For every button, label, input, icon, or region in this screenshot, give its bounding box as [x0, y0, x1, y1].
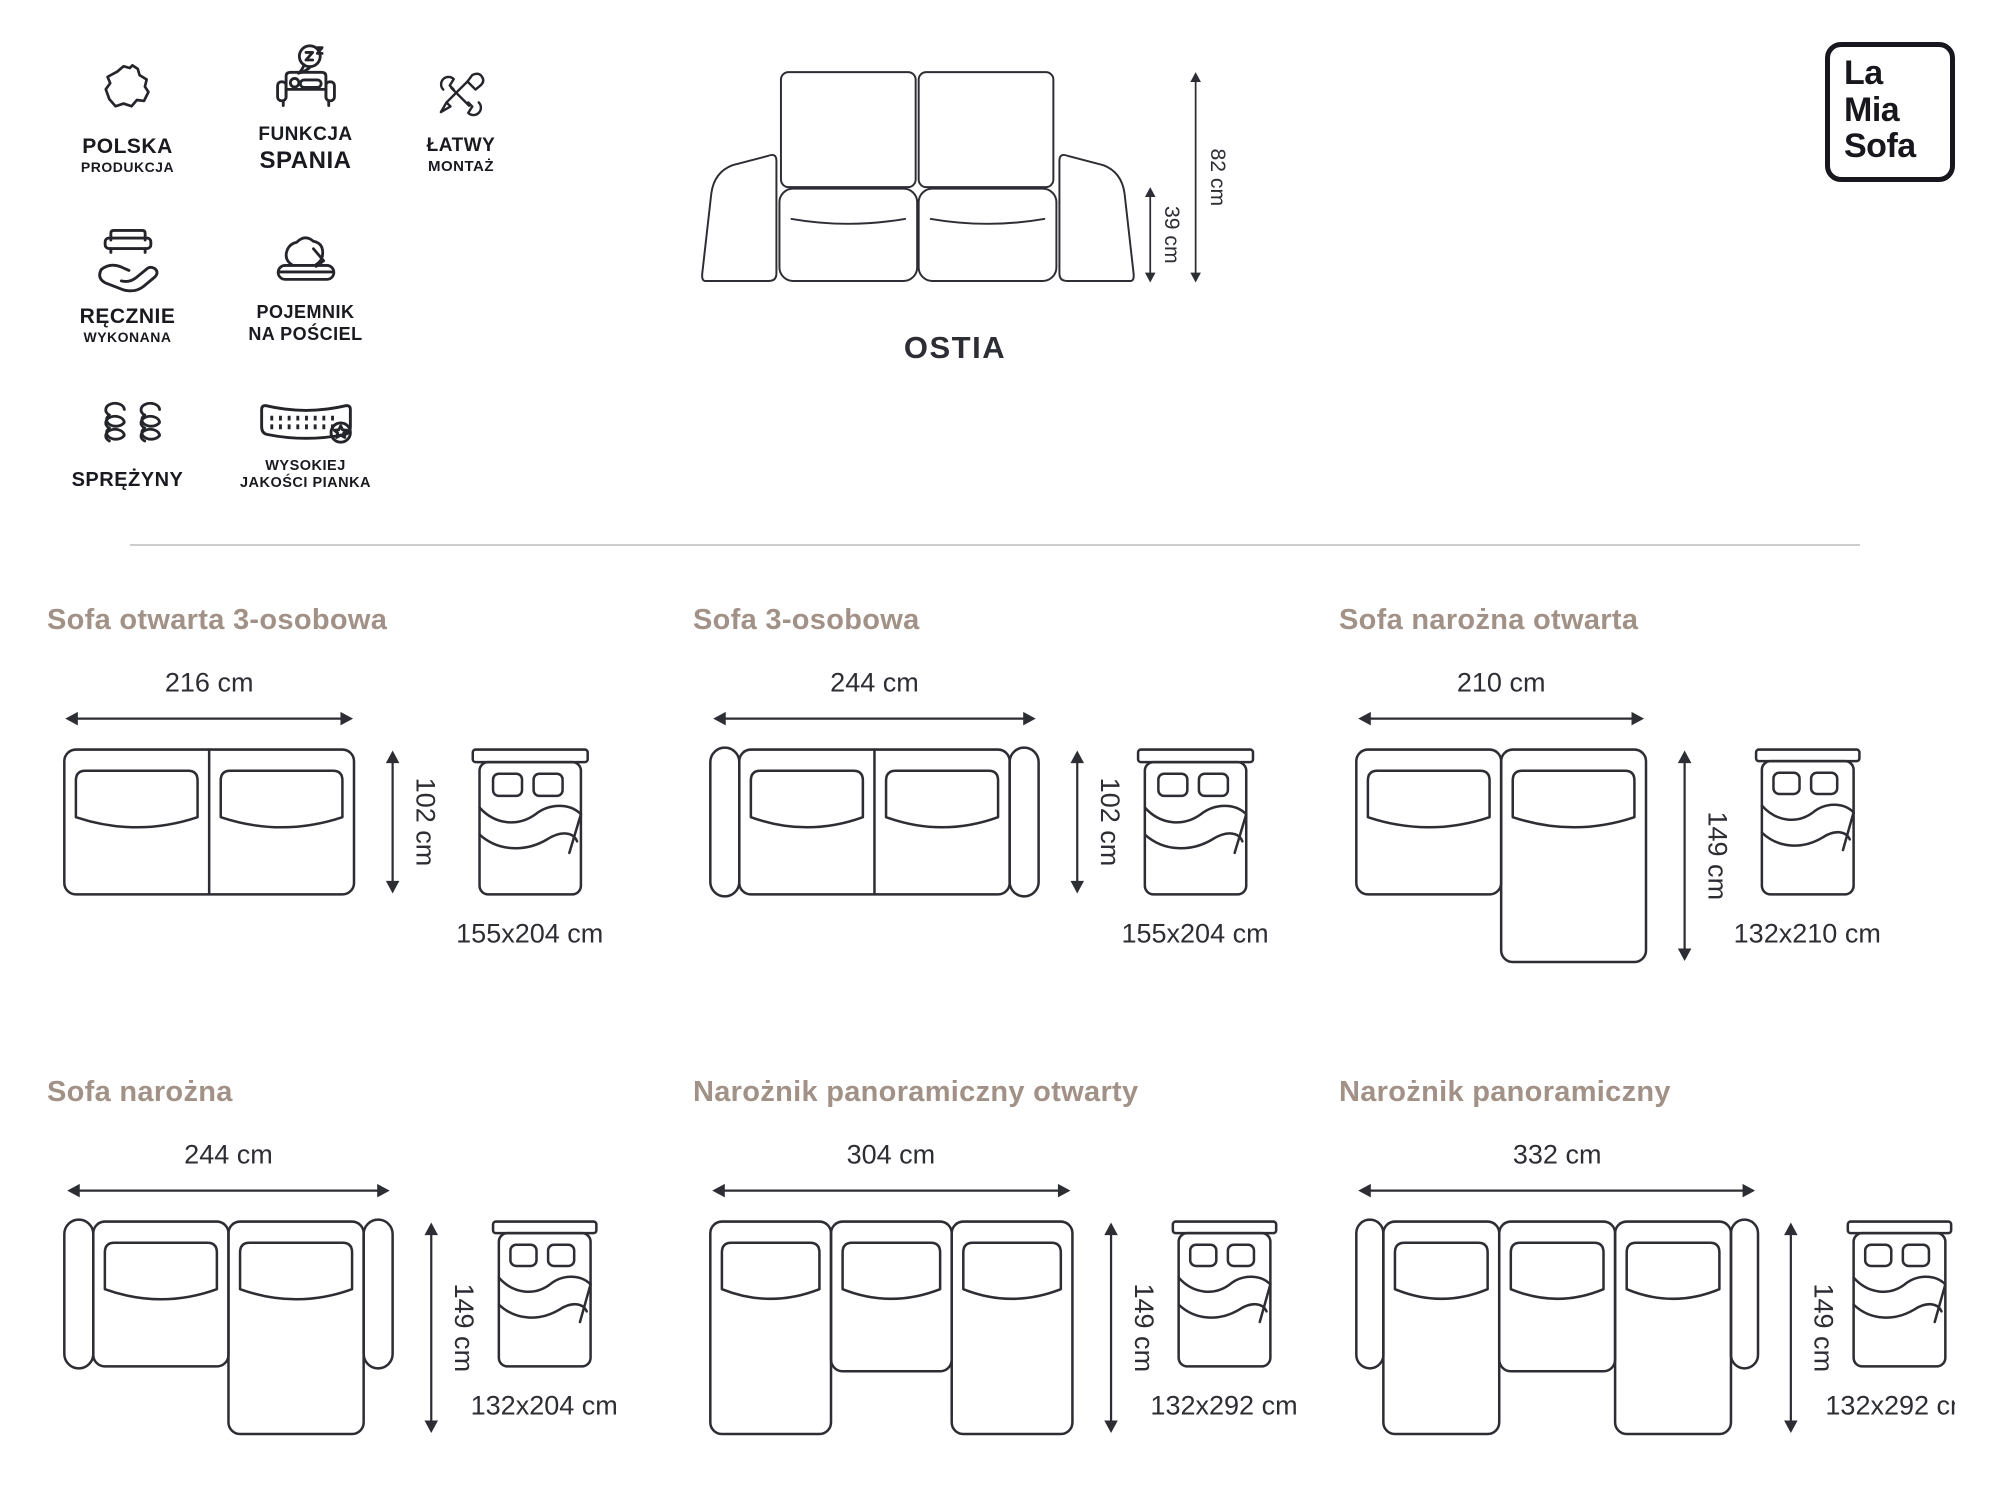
config-diagram: 304 cm 149 cm: [691, 1125, 1309, 1473]
config-title: Sofa otwarta 3-osobowa: [47, 604, 663, 637]
sofa-front-view-drawing: 39 cm 82 cm: [675, 60, 1235, 296]
logo-wrap: La Mia Sofa: [1825, 42, 1955, 182]
feature-sublabel: WYKONANA: [80, 329, 176, 346]
config-card-sofa-otwarta-3-osobowa: Sofa otwarta 3-osobowa 216 cm 102 cm: [45, 604, 663, 1001]
feature-label: WYSOKIEJ: [240, 458, 371, 475]
product-title: OSTIA: [904, 330, 1006, 366]
feature-recznie-wykonana: RĘCZNIE WYKONANA: [45, 224, 210, 346]
header: POLSKA PRODUKCJA: [0, 0, 2000, 492]
feature-polska-produkcja: POLSKA PRODUKCJA: [45, 42, 210, 176]
handmade-icon: [88, 224, 168, 294]
depth-label: 149 cm: [1809, 1283, 1839, 1372]
config-diagram: 216 cm 102 cm 155: [45, 653, 663, 1001]
config-diagram: 244 cm 102 cm: [691, 653, 1309, 1001]
config-card-naroznik-panoramiczny: Narożnik panoramiczny 332 cm 149 cm: [1337, 1076, 1955, 1473]
depth-label: 102 cm: [1095, 778, 1125, 867]
feature-label: POJEMNIK: [248, 302, 362, 324]
total-height-label: 82 cm: [1206, 148, 1229, 206]
feature-latwy-montaz: ŁATWY MONTAŻ: [401, 42, 521, 176]
bed-size-label: 132x204 cm: [471, 1391, 618, 1421]
feature-label: POLSKA: [81, 134, 174, 159]
config-card-sofa-3-osobowa: Sofa 3-osobowa 244 cm 102 cm: [691, 604, 1309, 1001]
bed-icon: [1848, 1222, 1951, 1367]
logo-line: Sofa: [1844, 128, 1936, 165]
depth-label: 149 cm: [1129, 1283, 1159, 1372]
bed-size-label: 132x292 cm: [1150, 1391, 1297, 1421]
bed-icon: [1756, 750, 1859, 895]
feature-sublabel: JAKOŚCI PIANKA: [240, 475, 371, 492]
easy-assembly-tools-icon: [432, 67, 490, 125]
logo-line: La: [1844, 55, 1936, 92]
bed-icon: [473, 750, 588, 895]
config-card-sofa-narozna-otwarta: Sofa narożna otwarta 210 cm 149 cm: [1337, 604, 1955, 1001]
config-card-naroznik-panoramiczny-otwarty: Narożnik panoramiczny otwarty 304 cm 149…: [691, 1076, 1309, 1473]
config-title: Narożnik panoramiczny otwarty: [693, 1076, 1309, 1109]
bed-size-label: 155x204 cm: [1121, 919, 1268, 949]
bed-size-label: 155x204 cm: [456, 919, 603, 949]
configurations-grid: Sofa otwarta 3-osobowa 216 cm 102 cm: [45, 604, 1955, 1472]
config-diagram: 332 cm 149 cm: [1337, 1125, 1955, 1473]
feature-label: RĘCZNIE: [80, 304, 176, 329]
width-label: 332 cm: [1513, 1140, 1602, 1170]
springs-icon: [89, 398, 167, 458]
width-label: 216 cm: [165, 668, 254, 698]
poland-map-icon: [95, 60, 161, 124]
feature-sublabel: MONTAŻ: [427, 158, 496, 176]
config-diagram: 210 cm 149 cm 132: [1337, 653, 1955, 1001]
config-card-sofa-narozna: Sofa narożna 244 cm 149 cm: [45, 1076, 663, 1473]
feature-label: FUNKCJA: [258, 124, 352, 147]
product-hero: 39 cm 82 cm OSTIA: [665, 42, 1245, 366]
bed-icon: [1173, 1222, 1276, 1367]
depth-label: 149 cm: [1702, 812, 1732, 901]
spec-sheet: POLSKA PRODUKCJA: [0, 0, 2000, 1500]
bedding-storage-icon: [267, 224, 345, 292]
width-label: 244 cm: [830, 668, 919, 698]
section-divider: [130, 544, 1860, 546]
bed-icon: [1138, 750, 1253, 895]
feature-wysokiej-jakosci-pianka: WYSOKIEJ JAKOŚCI PIANKA: [218, 394, 393, 493]
feature-sublabel: PRODUKCJA: [81, 159, 174, 176]
config-diagram: 244 cm 149 cm: [45, 1125, 663, 1473]
feature-funkcja-spania: FUNKCJA SPANIA: [218, 42, 393, 176]
bed-size-label: 132x292 cm: [1825, 1391, 1955, 1421]
depth-label: 149 cm: [449, 1283, 479, 1372]
seat-height-label: 39 cm: [1160, 206, 1183, 264]
depth-label: 102 cm: [410, 778, 440, 867]
width-label: 244 cm: [184, 1140, 273, 1170]
config-title: Sofa 3-osobowa: [693, 604, 1309, 637]
config-title: Sofa narożna: [47, 1076, 663, 1109]
feature-label: ŁATWY: [427, 135, 496, 158]
feature-sublabel: NA POŚCIEL: [248, 324, 362, 346]
high-quality-foam-icon: [254, 394, 358, 448]
brand-logo: La Mia Sofa: [1825, 42, 1955, 182]
feature-icons-grid: POLSKA PRODUKCJA: [45, 42, 515, 492]
logo-line: Mia: [1844, 92, 1936, 129]
bed-icon: [493, 1222, 596, 1367]
width-label: 210 cm: [1457, 668, 1546, 698]
feature-label: SPRĘŻYNY: [72, 468, 184, 492]
feature-sprezyny: SPRĘŻYNY: [45, 394, 210, 493]
config-title: Sofa narożna otwarta: [1339, 604, 1955, 637]
width-label: 304 cm: [847, 1140, 936, 1170]
feature-pojemnik-na-posciel: POJEMNIK NA POŚCIEL: [218, 224, 393, 346]
feature-sublabel: SPANIA: [258, 147, 352, 176]
sleep-function-icon: [268, 42, 344, 114]
config-title: Narożnik panoramiczny: [1339, 1076, 1955, 1109]
bed-size-label: 132x210 cm: [1734, 919, 1881, 949]
